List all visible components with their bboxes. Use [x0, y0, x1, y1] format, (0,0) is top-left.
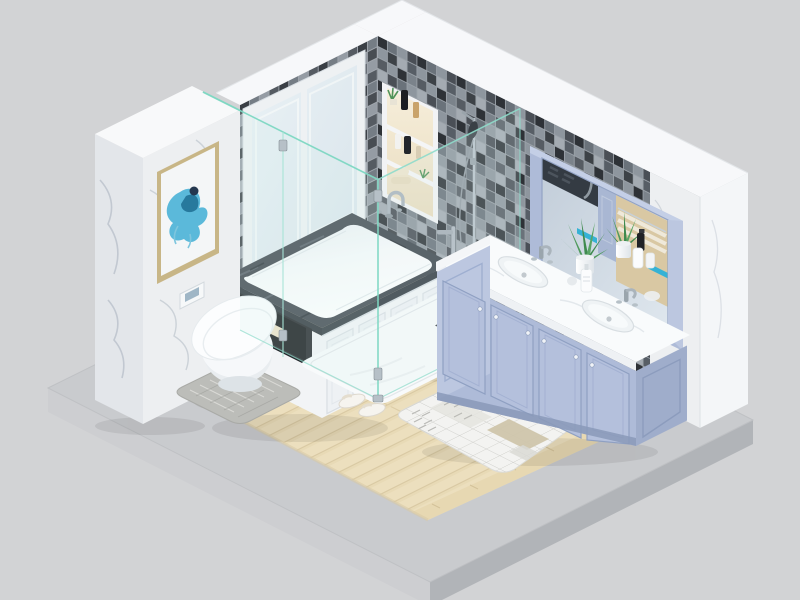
scene-canvas	[0, 0, 800, 600]
isometric-bathroom-render	[0, 0, 800, 600]
right-wall-edge	[700, 173, 748, 428]
